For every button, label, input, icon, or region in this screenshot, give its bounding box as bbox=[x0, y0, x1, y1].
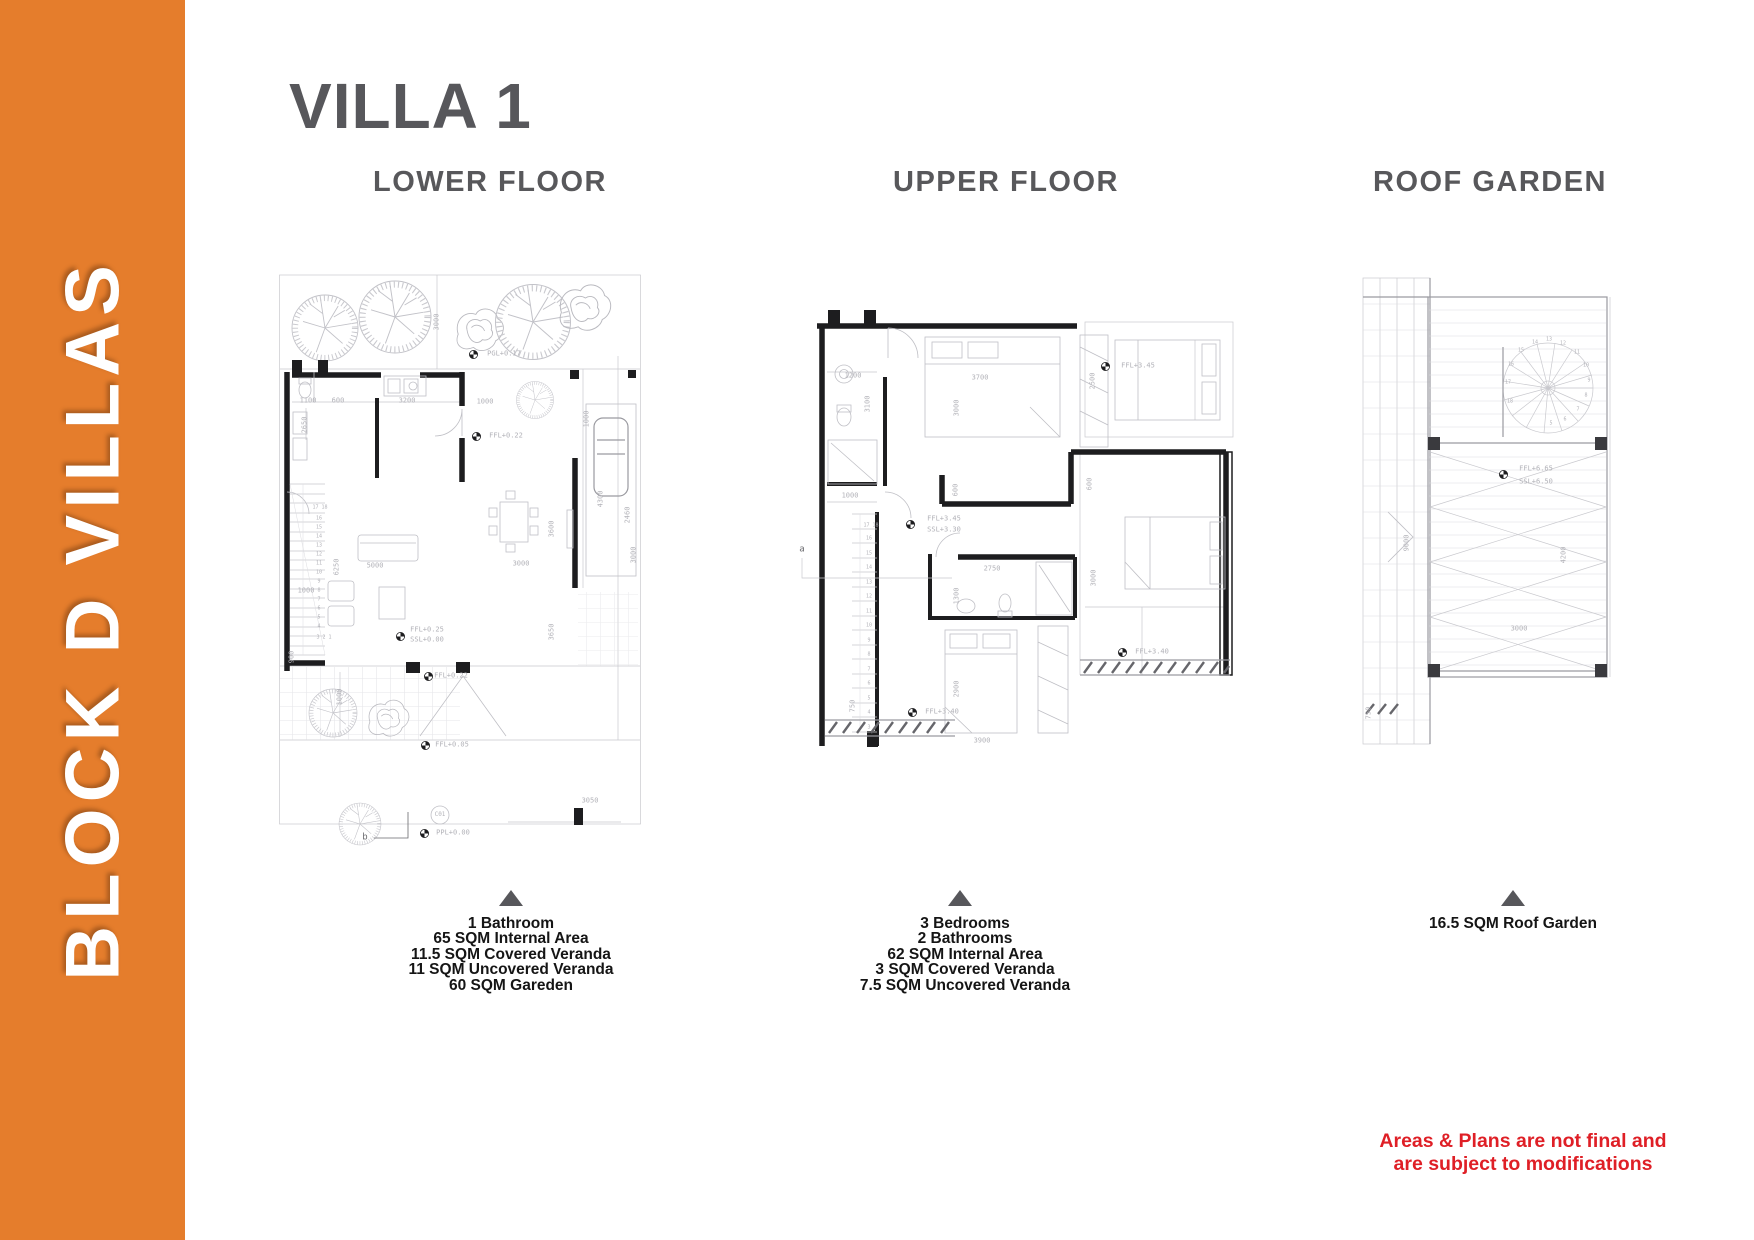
lower-floor-plan: 3000PGL+0.171100600320010002650FFL+0.221… bbox=[278, 272, 646, 850]
pergola bbox=[1363, 297, 1610, 677]
trellis-band bbox=[1363, 278, 1430, 744]
stairs-upper bbox=[852, 514, 877, 732]
bedroom-top-right bbox=[1115, 340, 1220, 420]
page-title: VILLA 1 bbox=[289, 74, 532, 138]
text-line: 3 SQM Covered Veranda bbox=[860, 962, 1070, 977]
text-line: 60 SQM Gareden bbox=[408, 978, 613, 993]
lower-floor-specs: 1 Bathroom65 SQM Internal Area11.5 SQM C… bbox=[408, 916, 613, 993]
stairs bbox=[290, 484, 325, 655]
text-line: 16.5 SQM Roof Garden bbox=[1429, 916, 1597, 931]
lower-marker-triangle bbox=[499, 890, 523, 906]
bedroom-right bbox=[1125, 517, 1225, 589]
bedroom-top bbox=[925, 335, 1108, 447]
text-line: are subject to modifications bbox=[1379, 1153, 1666, 1176]
text-line: 65 SQM Internal Area bbox=[408, 931, 613, 946]
upper-floor-plan: 12003100370030002500FFL+3.451000600600FF… bbox=[740, 262, 1240, 752]
text-line: 11 SQM Uncovered Veranda bbox=[408, 962, 613, 977]
roof-hatch bbox=[1366, 704, 1398, 714]
text-line: 11.5 SQM Covered Veranda bbox=[408, 947, 613, 962]
page: BLOCK D VILLAS VILLA 1 LOWER FLOOR UPPER… bbox=[0, 0, 1754, 1240]
text-line: 1 Bathroom bbox=[408, 916, 613, 931]
text-line: 7.5 SQM Uncovered Veranda bbox=[860, 978, 1070, 993]
veranda-hatch bbox=[825, 660, 1230, 736]
bathroom-1 bbox=[828, 365, 877, 484]
upper-marker-triangle bbox=[948, 890, 972, 906]
bedroom-bottom bbox=[945, 626, 1068, 733]
car-port bbox=[586, 404, 636, 576]
heading-lower-floor: LOWER FLOOR bbox=[373, 166, 607, 199]
roof-garden-specs: 16.5 SQM Roof Garden bbox=[1429, 916, 1597, 931]
text-line: 2 Bathrooms bbox=[860, 931, 1070, 946]
banner-title: BLOCK D VILLAS bbox=[49, 259, 136, 981]
wc bbox=[293, 372, 314, 460]
upper-walls bbox=[817, 310, 1232, 747]
disclaimer: Areas & Plans are not final andare subje… bbox=[1379, 1130, 1666, 1176]
text-line: 62 SQM Internal Area bbox=[860, 947, 1070, 962]
side-banner: BLOCK D VILLAS bbox=[0, 0, 185, 1240]
kitchen bbox=[384, 376, 426, 396]
dining-table bbox=[489, 491, 538, 552]
heading-roof-garden: ROOF GARDEN bbox=[1373, 166, 1607, 199]
text-line: Areas & Plans are not final and bbox=[1379, 1130, 1666, 1153]
roof-marker-triangle bbox=[1501, 890, 1525, 906]
bathroom-2 bbox=[957, 562, 1072, 617]
upper-floor-specs: 3 Bedrooms2 Bathrooms62 SQM Internal Are… bbox=[860, 916, 1070, 993]
garden-trees bbox=[292, 281, 611, 845]
roof-garden-plan: FFL+6.65SSL+6.50900042003000750181716151… bbox=[1358, 262, 1614, 762]
text-line: 3 Bedrooms bbox=[860, 916, 1070, 931]
spiral-stair bbox=[1503, 343, 1593, 437]
heading-upper-floor: UPPER FLOOR bbox=[893, 166, 1119, 199]
living-room-furniture bbox=[328, 510, 573, 626]
